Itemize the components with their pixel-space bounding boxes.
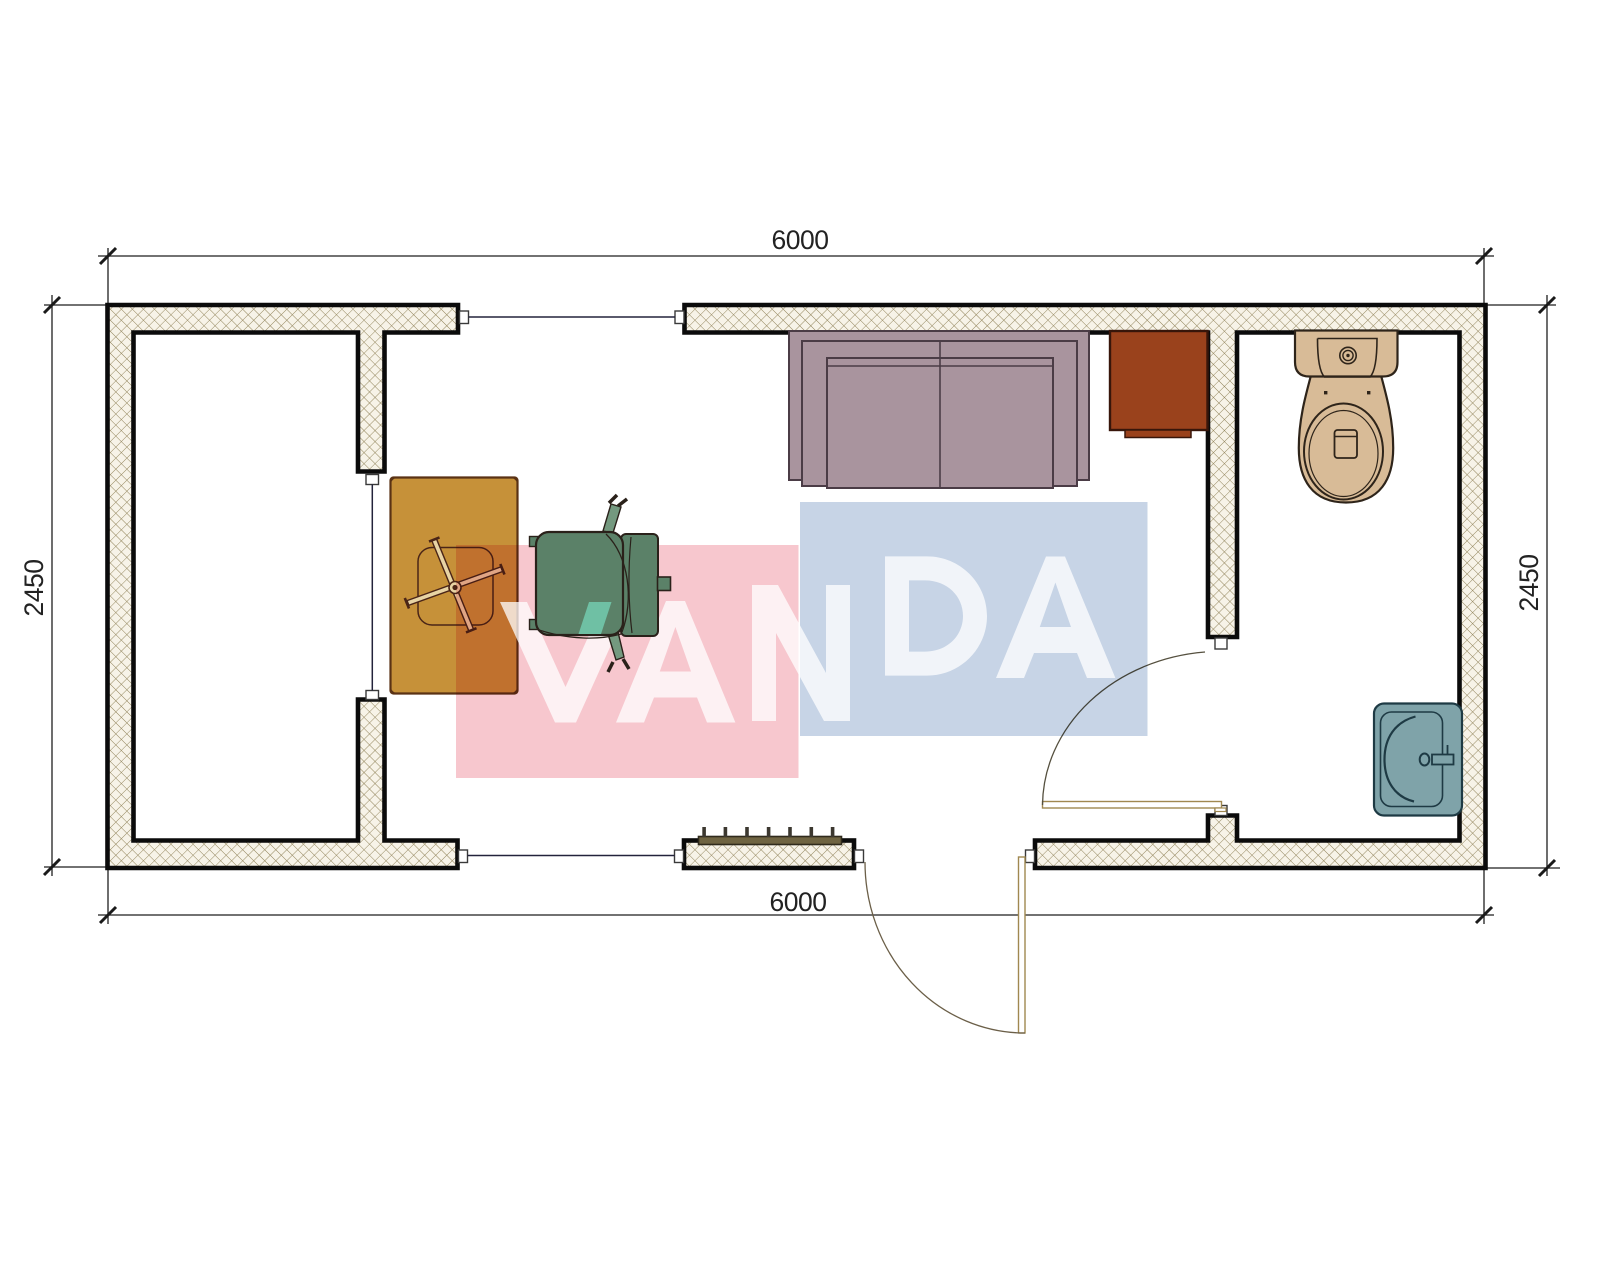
svg-text:6000: 6000 [772,225,829,255]
svg-text:2450: 2450 [19,560,49,617]
svg-text:6000: 6000 [770,887,827,917]
svg-text:2450: 2450 [1514,555,1544,612]
